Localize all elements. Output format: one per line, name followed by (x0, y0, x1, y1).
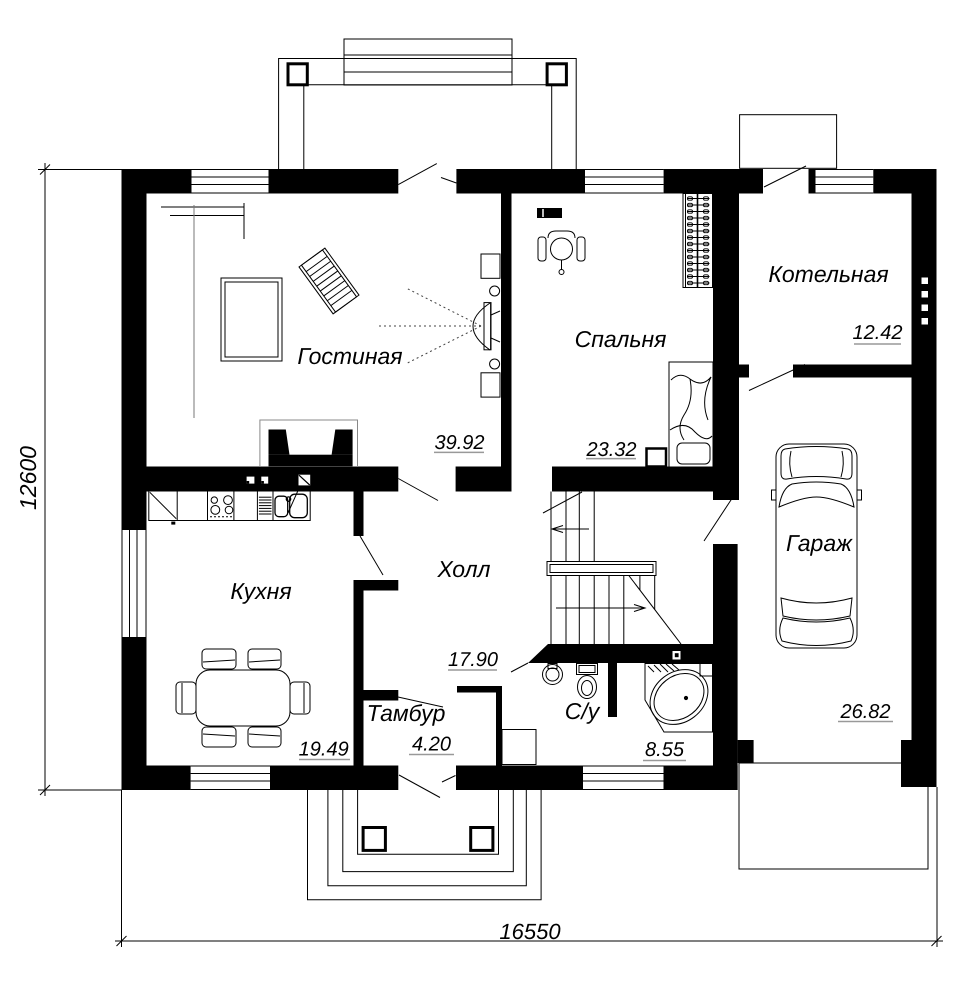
svg-text:8.55: 8.55 (645, 739, 685, 761)
svg-text:Гостиная: Гостиная (297, 343, 402, 369)
svg-text:19.49: 19.49 (299, 739, 349, 761)
svg-text:17.90: 17.90 (448, 649, 498, 671)
svg-text:26.82: 26.82 (839, 701, 890, 723)
svg-text:23.32: 23.32 (585, 439, 636, 461)
svg-text:Спальня: Спальня (575, 326, 667, 352)
svg-text:4.20: 4.20 (412, 734, 451, 756)
svg-text:Кухня: Кухня (230, 578, 291, 604)
svg-text:12600: 12600 (15, 446, 41, 510)
svg-text:16550: 16550 (499, 919, 561, 944)
svg-text:Котельная: Котельная (768, 261, 888, 287)
svg-text:Холл: Холл (436, 556, 490, 582)
svg-text:12.42: 12.42 (852, 322, 902, 344)
svg-text:Тамбур: Тамбур (367, 700, 446, 726)
svg-text:39.92: 39.92 (434, 432, 484, 454)
svg-text:Гараж: Гараж (786, 530, 853, 556)
svg-text:С/у: С/у (565, 698, 601, 724)
